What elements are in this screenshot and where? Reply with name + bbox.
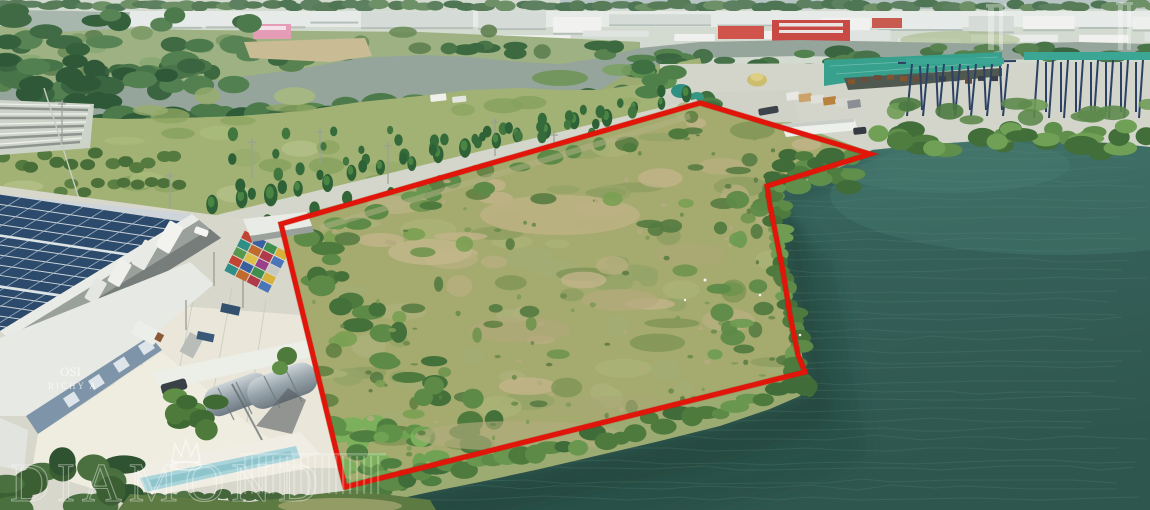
- svg-text:DIAMOND: DIAMOND: [10, 452, 325, 510]
- svg-text:OSI: OSI: [60, 364, 81, 379]
- svg-text:RICHY A: RICHY A: [48, 381, 98, 391]
